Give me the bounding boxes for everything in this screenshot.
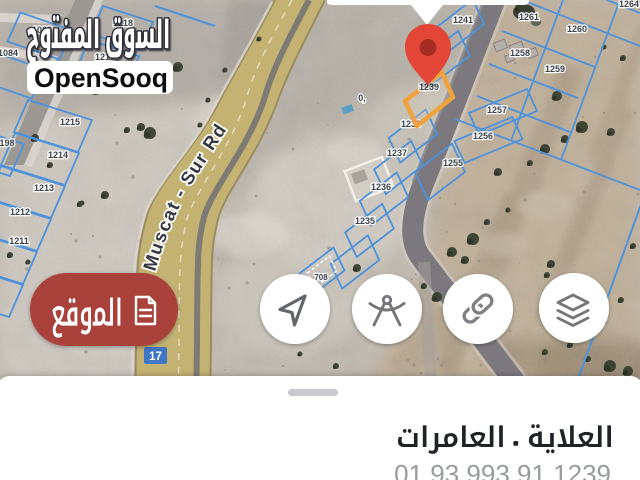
- svg-text:1235: 1235: [355, 216, 375, 226]
- svg-text:1255: 1255: [443, 158, 463, 168]
- svg-text:1084: 1084: [0, 48, 18, 58]
- svg-text:17: 17: [149, 351, 162, 363]
- svg-text:708: 708: [314, 273, 328, 282]
- svg-text:1237: 1237: [387, 148, 407, 158]
- svg-text:1259: 1259: [545, 64, 565, 74]
- svg-text:1214: 1214: [48, 150, 68, 160]
- svg-text:1215: 1215: [60, 117, 80, 127]
- svg-text:1261: 1261: [519, 12, 539, 22]
- svg-text:1260: 1260: [567, 24, 587, 34]
- svg-text:1211: 1211: [9, 236, 29, 246]
- svg-text:1241: 1241: [453, 15, 473, 25]
- svg-text:1212: 1212: [10, 207, 30, 217]
- svg-text:198: 198: [0, 138, 15, 148]
- svg-text:0,: 0,: [358, 93, 366, 103]
- svg-text:1236: 1236: [371, 182, 391, 192]
- svg-text:1258: 1258: [510, 48, 530, 58]
- svg-text:1264: 1264: [619, 0, 639, 9]
- svg-text:1257: 1257: [487, 105, 507, 115]
- svg-text:01 93 993 91 1239: 01 93 993 91 1239: [394, 459, 611, 480]
- svg-text:1256: 1256: [473, 131, 493, 141]
- svg-text:OpenSooq: OpenSooq: [34, 63, 168, 93]
- svg-text:1213: 1213: [34, 183, 54, 193]
